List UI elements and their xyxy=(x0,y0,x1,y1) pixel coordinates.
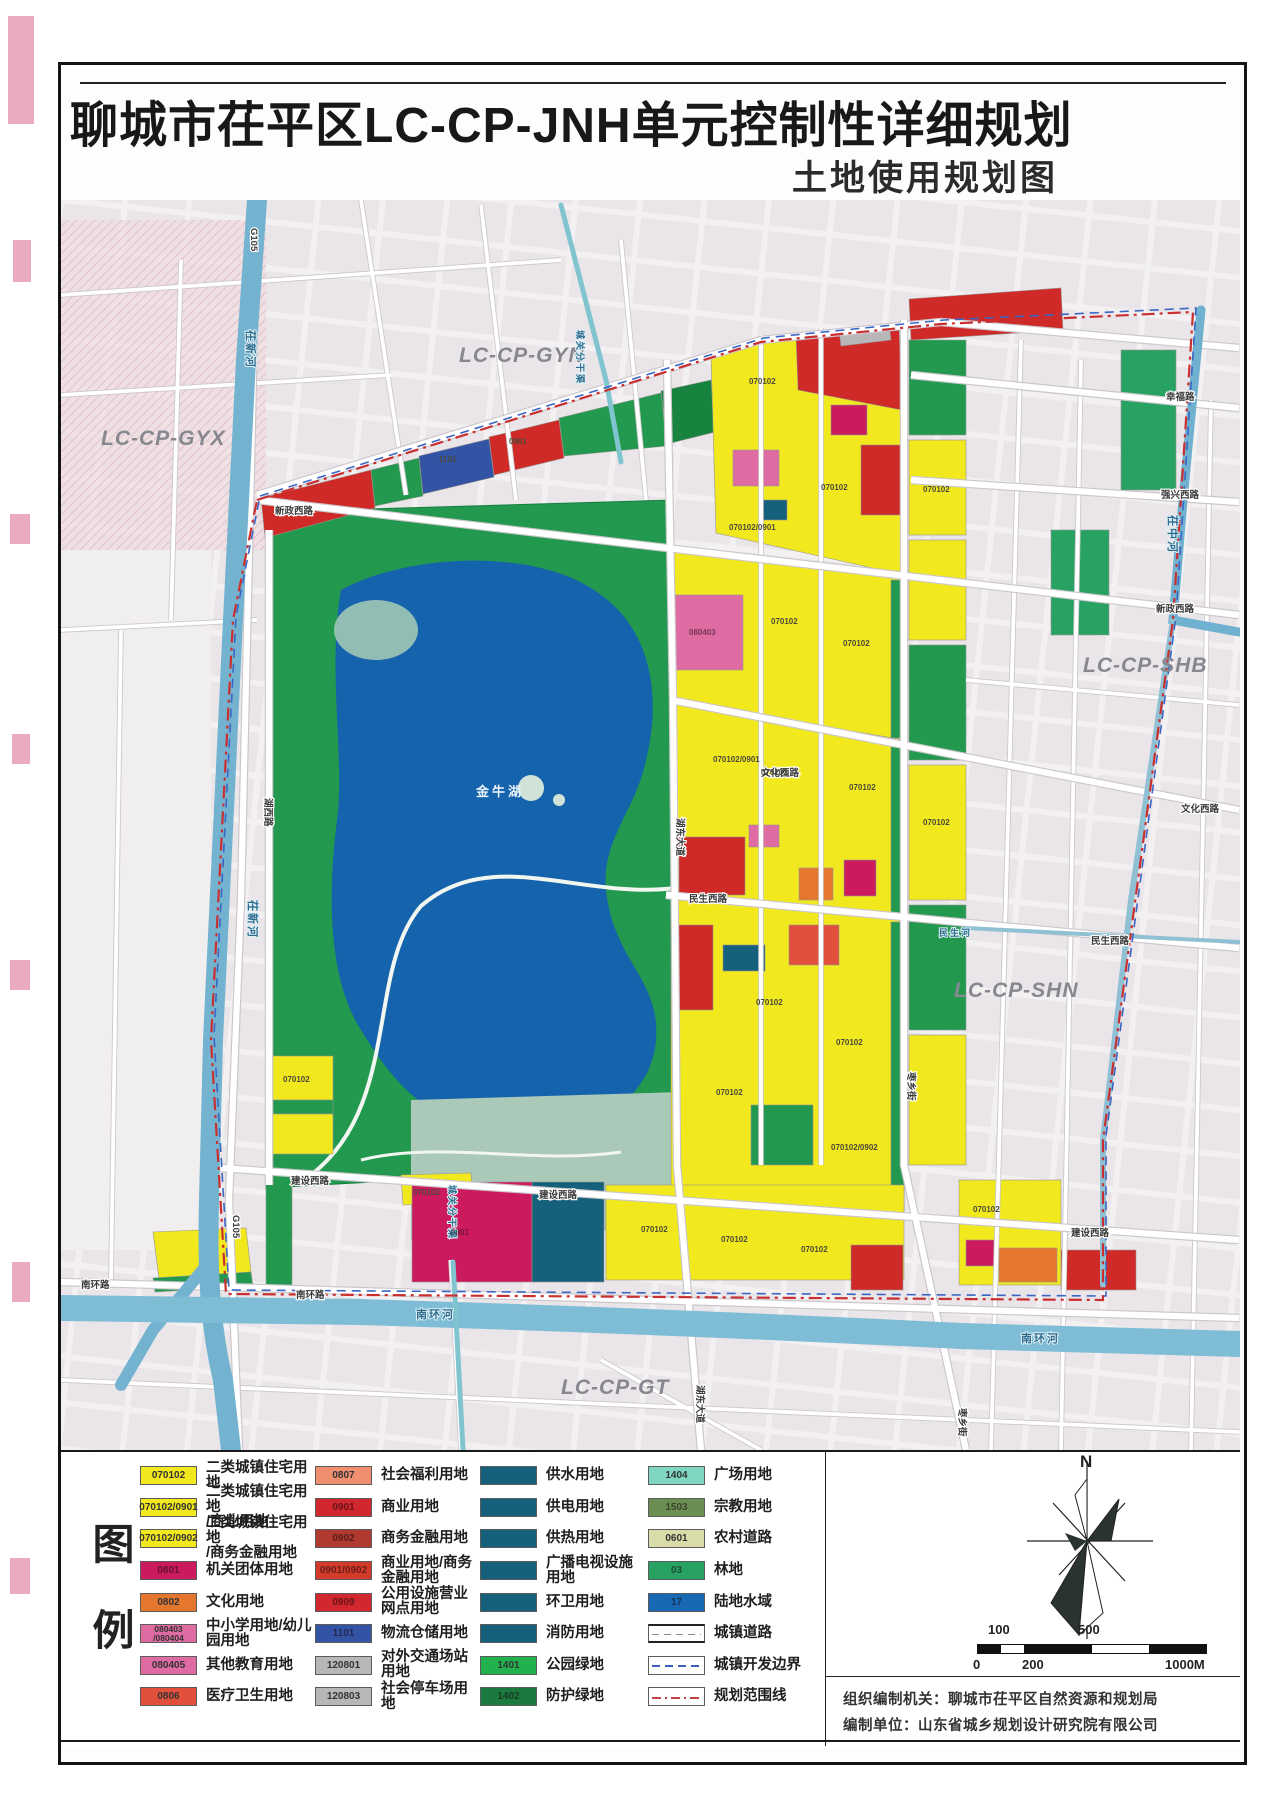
parcel-code: 070102 xyxy=(923,485,950,494)
legend-item: 080403 /080404中小学用地/幼儿园用地 xyxy=(140,1618,315,1650)
legend-swatch: 0901/0902 xyxy=(315,1561,372,1580)
legend-label: 商业用地 xyxy=(381,1500,439,1515)
legend-swatch: 0807 xyxy=(315,1466,372,1485)
legend-swatch: 070102 xyxy=(140,1466,197,1485)
legend-title: 图例 xyxy=(80,1522,141,1694)
parcel-code: 070102 xyxy=(843,639,870,648)
legend-swatch xyxy=(480,1561,537,1580)
map-canvas[interactable]: LC-CP-GYX LC-CP-GYN LC-CP-SHB LC-CP-SHN … xyxy=(61,200,1240,1450)
parcel-code: 070102 xyxy=(413,1188,440,1197)
road-label: G105 xyxy=(248,228,259,252)
road-label: 湖西路 xyxy=(262,798,274,827)
parcel-code: 070102 xyxy=(761,768,788,777)
parcel-code: 070102 xyxy=(641,1225,668,1234)
legend-label: 医疗卫生用地 xyxy=(206,1689,293,1704)
region-label: LC-CP-GYX xyxy=(101,427,226,450)
legend-swatch: 03 xyxy=(648,1561,705,1580)
legend-item: 0902商务金融用地 xyxy=(315,1523,478,1555)
legend-swatch xyxy=(480,1529,537,1548)
legend-label: 供热用地 xyxy=(546,1531,604,1546)
legend-swatch: 0909 xyxy=(315,1593,372,1612)
print-artifact xyxy=(12,1262,30,1302)
legend-label: 广场用地 xyxy=(714,1468,772,1483)
legend-item: 120801对外交通场站用地 xyxy=(315,1650,478,1682)
legend-swatch xyxy=(480,1466,537,1485)
legend-label: 环卫用地 xyxy=(546,1595,604,1610)
legend-swatch: 070102/0901 xyxy=(140,1498,197,1517)
scale-label: 0 xyxy=(973,1657,980,1672)
legend-item: 环卫用地 xyxy=(480,1586,646,1618)
legend-label: 二类城镇住宅用地 /商务金融用地 xyxy=(206,1516,315,1561)
legend-column-2: 0807社会福利用地0901商业用地0902商务金融用地0901/0902商业用… xyxy=(315,1460,478,1713)
attribution-line1: 组织编制机关：聊城市茌平区自然资源和规划局 xyxy=(843,1688,1235,1709)
legend-item: 0901/0902商业用地/商务金融用地 xyxy=(315,1555,478,1587)
road-label: 幸福路 xyxy=(1166,391,1195,403)
road-label: 湖东大道 xyxy=(674,818,686,857)
legend-label: 公园绿地 xyxy=(546,1658,604,1673)
compass-rose-icon xyxy=(1015,1455,1165,1650)
canal-label: 城关分干渠 xyxy=(575,330,586,385)
legend-swatch: 1404 xyxy=(648,1466,705,1485)
legend-item: 0909公用设施营业网点用地 xyxy=(315,1586,478,1618)
region-label: LC-CP-SHN xyxy=(954,979,1079,1002)
scale-label: 1000M xyxy=(1165,1657,1205,1672)
road-label: 文化西路 xyxy=(1180,803,1220,815)
road-label: 南环路 xyxy=(296,1289,325,1301)
scale-label: 100 xyxy=(988,1622,1010,1637)
region-label: LC-CP-GYN xyxy=(459,344,585,367)
print-artifact xyxy=(10,1558,30,1594)
legend-swatch: 120803 xyxy=(315,1687,372,1706)
road-label: 新政西路 xyxy=(1156,603,1195,615)
legend-swatch: 1101 xyxy=(315,1624,372,1643)
print-artifact xyxy=(13,240,31,282)
legend-label: 城镇道路 xyxy=(714,1626,772,1641)
parcel-code: 070102 xyxy=(836,1038,863,1047)
parcel-code: 0801 xyxy=(451,1228,469,1237)
legend-item: 消防用地 xyxy=(480,1618,646,1650)
legend-swatch xyxy=(480,1624,537,1643)
parcel-code: 070102 xyxy=(923,818,950,827)
legend-swatch: 080405 xyxy=(140,1656,197,1675)
legend-item: 1503宗教用地 xyxy=(648,1492,824,1524)
region-label: LC-CP-GT xyxy=(561,1376,670,1399)
legend-label: 社会停车场用地 xyxy=(381,1682,478,1712)
legend-column-3: 供水用地供电用地供热用地广播电视设施用地环卫用地消防用地1401公园绿地1402… xyxy=(480,1460,646,1713)
legend-swatch xyxy=(648,1624,705,1643)
legend-item: 080405其他教育用地 xyxy=(140,1650,315,1682)
legend-label: 农村道路 xyxy=(714,1531,772,1546)
road-label: 建设西路 xyxy=(290,1175,330,1187)
legend-swatch: 120801 xyxy=(315,1656,372,1675)
page-subtitle: 土地使用规划图 xyxy=(792,150,1058,201)
legend-label: 商业用地/商务金融用地 xyxy=(381,1556,478,1586)
legend-label: 物流仓储用地 xyxy=(381,1626,468,1641)
parcel-code: 070102 xyxy=(283,1075,310,1084)
legend-swatch: 0601 xyxy=(648,1529,705,1548)
parcel-code: 070102/0901 xyxy=(713,755,760,764)
road-label: 新政西路 xyxy=(275,505,314,517)
scale-label: 500 xyxy=(1078,1622,1100,1637)
parcel-code: 1101 xyxy=(439,455,457,464)
parcel-code: 070102 xyxy=(716,1088,743,1097)
legend-item: 城镇开发边界 xyxy=(648,1650,824,1682)
river-label: 茌中河 xyxy=(1166,515,1180,554)
parcel-code: 070102 xyxy=(973,1205,1000,1214)
legend-label: 规划范围线 xyxy=(714,1689,787,1704)
road-label: 强兴西路 xyxy=(1161,489,1200,501)
river-label: 民生河 xyxy=(939,927,972,938)
legend-swatch: 0802 xyxy=(140,1593,197,1612)
region-label: LC-CP-SHB xyxy=(1083,654,1208,677)
attribution-divider xyxy=(825,1676,1240,1677)
legend-swatch: 0901 xyxy=(315,1498,372,1517)
lake-label: 金牛湖 xyxy=(475,784,524,799)
legend-item: 0901商业用地 xyxy=(315,1492,478,1524)
print-artifact xyxy=(10,514,30,544)
parcel-code: 070102 xyxy=(721,1235,748,1244)
legend-swatch: 1503 xyxy=(648,1498,705,1517)
legend-item: 供电用地 xyxy=(480,1492,646,1524)
title-rule xyxy=(80,82,1226,84)
parcel-code: 080403 xyxy=(689,628,716,637)
legend-swatch xyxy=(648,1687,705,1706)
legend-label: 陆地水域 xyxy=(714,1595,772,1610)
legend-item: 广播电视设施用地 xyxy=(480,1555,646,1587)
legend-label: 供电用地 xyxy=(546,1500,604,1515)
road-label: 民生西路 xyxy=(1091,935,1130,947)
legend-label: 其他教育用地 xyxy=(206,1658,293,1673)
print-artifact xyxy=(12,734,30,764)
river-label: 南环河 xyxy=(416,1307,455,1321)
legend-item: 070102/0902二类城镇住宅用地 /商务金融用地 xyxy=(140,1523,315,1555)
legend-panel-divider xyxy=(825,1450,826,1746)
legend-item: 1404广场用地 xyxy=(648,1460,824,1492)
legend-label: 林地 xyxy=(714,1563,743,1578)
print-artifact xyxy=(8,16,34,124)
legend-item: 供水用地 xyxy=(480,1460,646,1492)
parcel-code: 070102 xyxy=(771,617,798,626)
attribution-line2: 编制单位：山东省城乡规划设计研究院有限公司 xyxy=(843,1714,1235,1735)
road-label: 枣乡街 xyxy=(956,1407,968,1437)
legend-label: 商务金融用地 xyxy=(381,1531,468,1546)
legend-item: 03林地 xyxy=(648,1555,824,1587)
legend-label: 广播电视设施用地 xyxy=(546,1556,646,1586)
legend-item: 0807社会福利用地 xyxy=(315,1460,478,1492)
parcel-code: 070102/0902 xyxy=(831,1143,878,1152)
parcel-code: 070102 xyxy=(749,377,776,386)
legend-item: 城镇道路 xyxy=(648,1618,824,1650)
legend-swatch: 0806 xyxy=(140,1687,197,1706)
legend-label: 供水用地 xyxy=(546,1468,604,1483)
legend-label: 对外交通场站用地 xyxy=(381,1650,478,1680)
legend-item: 120803社会停车场用地 xyxy=(315,1681,478,1713)
legend-swatch: 0801 xyxy=(140,1561,197,1580)
scale-bar xyxy=(977,1644,1207,1654)
legend-item: 1402防护绿地 xyxy=(480,1681,646,1713)
legend-item: 17陆地水域 xyxy=(648,1586,824,1618)
legend-swatch: 1402 xyxy=(480,1687,537,1706)
legend-swatch: 070102/0902 xyxy=(140,1529,197,1548)
parcel-code: 070102 xyxy=(849,783,876,792)
legend-swatch: 080403 /080404 xyxy=(140,1624,197,1643)
legend-item: 1401公园绿地 xyxy=(480,1650,646,1682)
road-label: 建设西路 xyxy=(538,1189,578,1201)
legend-item: 0806医疗卫生用地 xyxy=(140,1681,315,1713)
road-label: 民生西路 xyxy=(689,893,728,905)
river-label: 南环河 xyxy=(1021,1331,1060,1345)
scale-label: 200 xyxy=(1022,1657,1044,1672)
legend-swatch: 17 xyxy=(648,1593,705,1612)
legend-label: 宗教用地 xyxy=(714,1500,772,1515)
parcel-code: 0901 xyxy=(509,437,527,446)
legend-label: 机关团体用地 xyxy=(206,1563,293,1578)
legend-swatch: 1401 xyxy=(480,1656,537,1675)
parcel-code: 070102 xyxy=(756,998,783,1007)
legend-column-1: 070102二类城镇住宅用地070102/0901二类城镇住宅用地 /商业用地0… xyxy=(140,1460,315,1713)
legend-column-4: 1404广场用地1503宗教用地0601农村道路03林地17陆地水域城镇道路城镇… xyxy=(648,1460,824,1713)
parcel-code: 070102/0901 xyxy=(729,523,776,532)
road-label: 南环路 xyxy=(81,1279,110,1291)
legend-label: 公用设施营业网点用地 xyxy=(381,1587,478,1617)
legend-item: 1101物流仓储用地 xyxy=(315,1618,478,1650)
legend-swatch: 0902 xyxy=(315,1529,372,1548)
legend-swatch xyxy=(480,1498,537,1517)
parcel-code: 070102 xyxy=(821,483,848,492)
legend-item: 0601农村道路 xyxy=(648,1523,824,1555)
road-label: G105 xyxy=(230,1215,241,1239)
parcel-code: 070102 xyxy=(801,1245,828,1254)
road-label: 建设西路 xyxy=(1070,1227,1110,1239)
legend-label: 文化用地 xyxy=(206,1595,264,1610)
legend-item: 供热用地 xyxy=(480,1523,646,1555)
legend-swatch xyxy=(648,1656,705,1675)
legend-label: 社会福利用地 xyxy=(381,1468,468,1483)
page-title: 聊城市茌平区LC-CP-JNH单元控制性详细规划 xyxy=(70,86,1060,157)
river-label: 茌新河 xyxy=(246,900,260,939)
legend-label: 中小学用地/幼儿园用地 xyxy=(206,1619,315,1649)
legend-label: 城镇开发边界 xyxy=(714,1658,801,1673)
river-label: 茌新河 xyxy=(244,330,258,369)
legend-swatch xyxy=(480,1593,537,1612)
road-label: 枣乡街 xyxy=(905,1071,917,1101)
legend-bottom-rule xyxy=(61,1740,1240,1742)
legend-label: 消防用地 xyxy=(546,1626,604,1641)
west-fields xyxy=(61,550,211,1250)
legend-item: 规划范围线 xyxy=(648,1681,824,1713)
road-label: 湖东大道 xyxy=(694,1385,706,1424)
legend-label: 防护绿地 xyxy=(546,1689,604,1704)
print-artifact xyxy=(10,960,30,990)
legend-item: 0802文化用地 xyxy=(140,1586,315,1618)
